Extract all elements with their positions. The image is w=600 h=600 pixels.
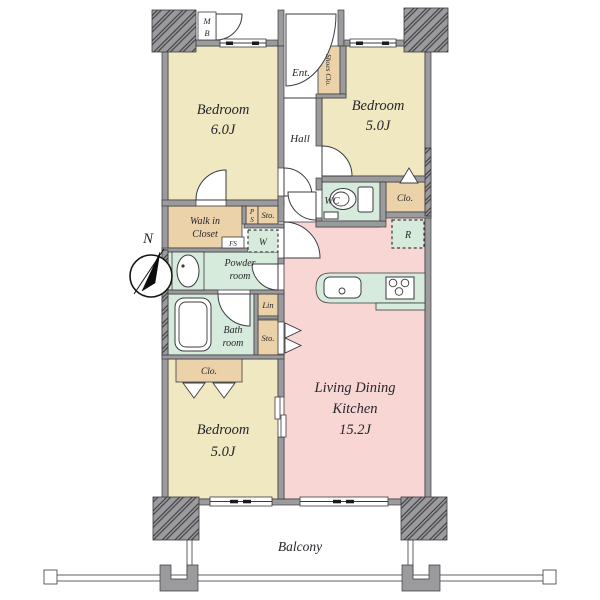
stove-icon — [386, 277, 414, 299]
bedroom3-size: 5.0J — [211, 444, 236, 460]
bath-room-line2: room — [223, 338, 244, 349]
pillar-top-right — [404, 8, 448, 52]
meter-box-line1: M — [202, 16, 211, 26]
powder-sink-icon — [172, 252, 204, 290]
railing-end-cap-right — [543, 570, 556, 584]
railing-end-cap-left — [44, 570, 57, 584]
toilet-paper-holder — [324, 212, 338, 219]
ldk-name-line1: Living Dining — [314, 380, 396, 396]
storage-upper-label: Sto. — [262, 210, 275, 220]
shoes-closet-label: Shoes Clo. — [324, 54, 333, 86]
closet-right-label: Clo. — [397, 194, 413, 204]
pipe-space-line2: S — [250, 216, 254, 224]
storage-lower-label: Sto. — [262, 333, 275, 343]
bedroom2-size: 5.0J — [366, 118, 391, 134]
kitchen-sink-icon — [324, 277, 361, 298]
kitchen-counter-return — [376, 303, 425, 310]
wc-door-swing — [288, 192, 316, 220]
right-wall-hatch — [425, 148, 431, 216]
refrigerator-label: R — [404, 230, 411, 241]
window-bottom-right — [300, 497, 388, 506]
bathtub-icon — [175, 298, 211, 351]
ldk-size: 15.2J — [339, 422, 371, 438]
balcony-label: Balcony — [278, 539, 322, 554]
bedroom3-name: Bedroom — [197, 422, 250, 438]
pipe-space-line1: P — [249, 208, 255, 216]
walk-in-closet-line1: Walk in — [190, 216, 220, 227]
balcony-railing — [50, 575, 550, 581]
pillar-top-left — [152, 10, 196, 52]
window-bottom-left — [210, 497, 272, 506]
hall-label: Hall — [289, 133, 310, 145]
bedroom1-name: Bedroom — [197, 102, 250, 118]
window-top-right — [350, 39, 396, 47]
pillar-bottom-left — [153, 497, 199, 540]
bedroom2-name: Bedroom — [352, 98, 405, 114]
linen-label: Lin — [261, 300, 273, 310]
walk-in-closet-line2: Closet — [192, 229, 218, 240]
bath-room-line1: Bath — [224, 325, 243, 336]
entrance-label: Ent. — [291, 67, 310, 79]
floor-plan-canvas: N Bedroom 6.0J Bedroom 5.0J Bedroom 5.0J… — [0, 0, 600, 600]
bedroom1-size: 6.0J — [211, 122, 236, 138]
wc-label: WC — [325, 196, 340, 207]
window-top-left — [220, 39, 266, 47]
closet-bottom-label: Clo. — [201, 367, 217, 377]
floor-plan-page: N Bedroom 6.0J Bedroom 5.0J Bedroom 5.0J… — [0, 0, 600, 600]
ldk-name-line2: Kitchen — [331, 401, 377, 417]
washer-label: W — [259, 238, 268, 248]
compass-north-label: N — [142, 231, 154, 247]
powder-room-line1: Powder — [223, 258, 255, 269]
meter-box-line2: B — [204, 28, 209, 38]
meter-box-door-swing — [216, 14, 242, 40]
free-space-label: FS — [228, 240, 237, 248]
powder-room-line2: room — [230, 271, 251, 282]
pillar-bottom-right — [401, 497, 447, 540]
